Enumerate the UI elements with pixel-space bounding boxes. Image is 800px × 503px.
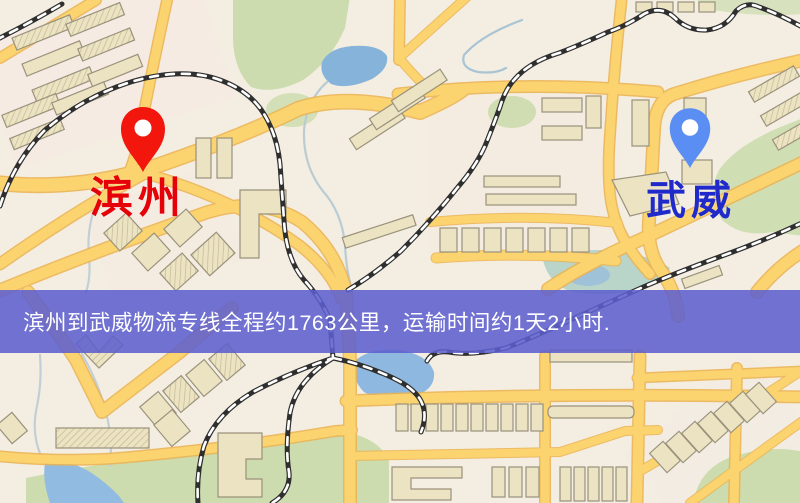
route-info-text: 滨州到武威物流专线全程约1763公里，运输时间约1天2小时. (23, 306, 610, 337)
map-canvas: 滨州 武威 滨州到武威物流专线全程约1763公里，运输时间约1天2小时. (0, 0, 800, 503)
route-info-banner: 滨州到武威物流专线全程约1763公里，运输时间约1天2小时. (0, 290, 800, 353)
origin-city-label: 滨州 (90, 178, 186, 221)
destination-city-label: 武威 (646, 181, 736, 221)
map-image (0, 0, 800, 503)
